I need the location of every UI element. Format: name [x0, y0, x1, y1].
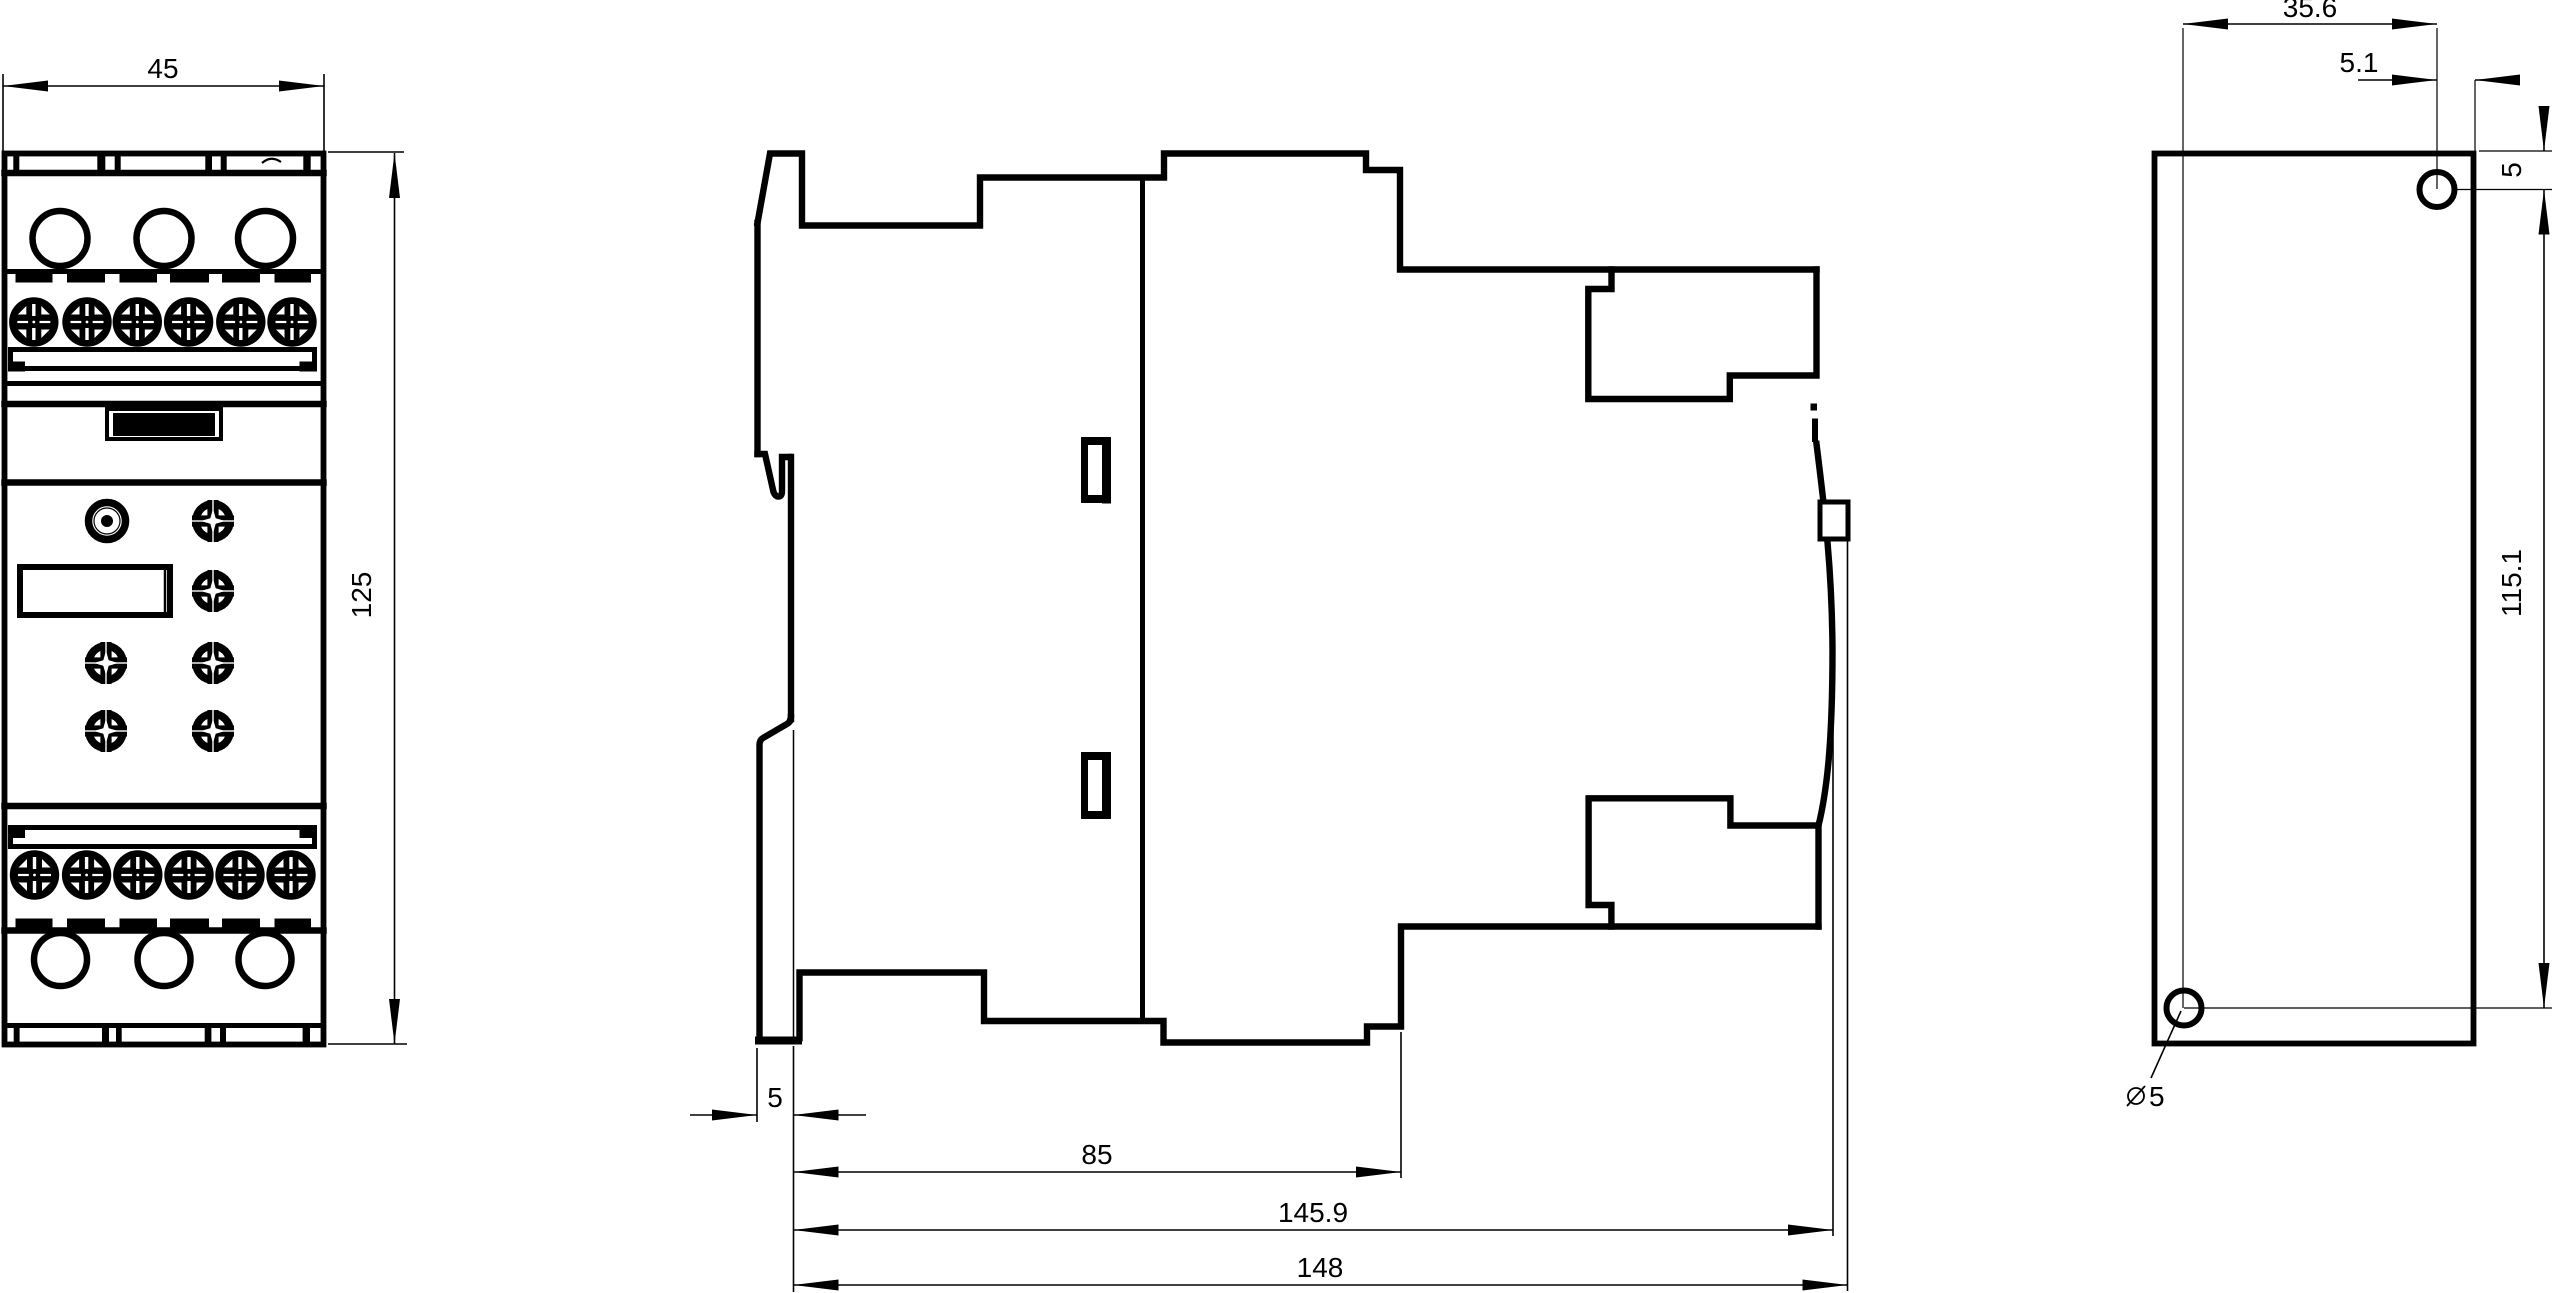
svg-text:5: 5	[767, 1082, 783, 1113]
svg-text:148: 148	[1297, 1252, 1344, 1283]
svg-text:125: 125	[346, 572, 377, 619]
svg-text:145.9: 145.9	[1278, 1197, 1348, 1228]
svg-text:5: 5	[2149, 1081, 2165, 1112]
svg-text:SIEMENS: SIEMENS	[126, 417, 203, 436]
svg-text:35.6: 35.6	[2283, 0, 2338, 23]
svg-text:115.1: 115.1	[2496, 549, 2527, 617]
svg-text:5: 5	[2496, 162, 2527, 178]
svg-text:85: 85	[1081, 1139, 1112, 1170]
svg-text:5.1: 5.1	[2340, 47, 2379, 78]
svg-text:45: 45	[147, 53, 178, 84]
